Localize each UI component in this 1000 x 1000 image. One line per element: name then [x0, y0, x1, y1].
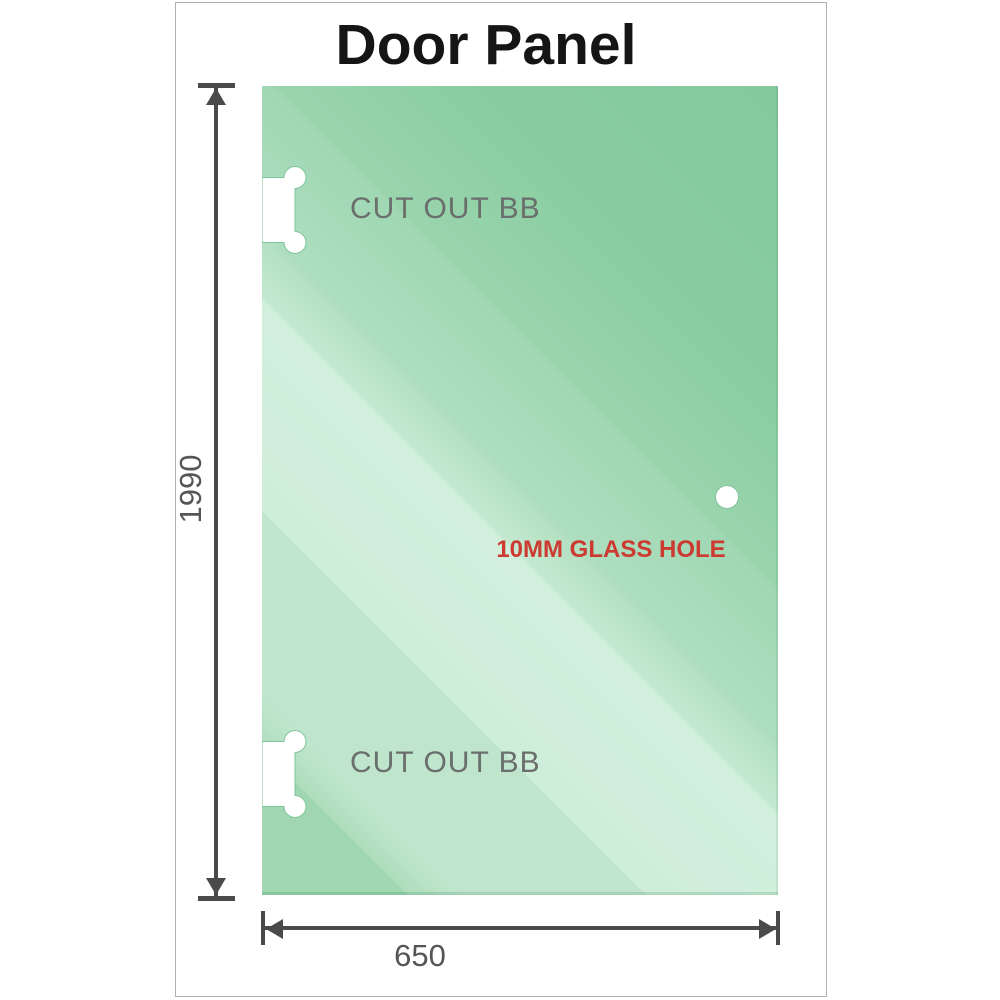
arrow-down-icon — [206, 878, 226, 895]
height-dimension-line — [214, 86, 218, 898]
glass-hole — [716, 486, 738, 508]
dimension-cap-right — [776, 911, 780, 945]
glass-hole-label: 10MM GLASS HOLE — [490, 536, 732, 564]
width-dimension-line — [264, 926, 778, 930]
hinge-cutout-icon-top — [262, 166, 308, 254]
dimension-cap-bottom — [198, 896, 235, 901]
height-dimension-value: 1990 — [175, 444, 207, 534]
cutout-label-top: CUT OUT BB — [350, 190, 750, 228]
arrow-right-icon — [759, 919, 776, 939]
arrow-left-icon — [266, 919, 283, 939]
diagram-canvas: Door Panel CUT OUT BB CUT OUT BB 10MM GL… — [0, 0, 1000, 1000]
arrow-up-icon — [206, 88, 226, 105]
cutout-label-bottom: CUT OUT BB — [350, 744, 750, 782]
page-title: Door Panel — [175, 12, 797, 78]
width-dimension-value: 650 — [370, 938, 470, 974]
hinge-cutout-icon-bottom — [262, 730, 308, 818]
